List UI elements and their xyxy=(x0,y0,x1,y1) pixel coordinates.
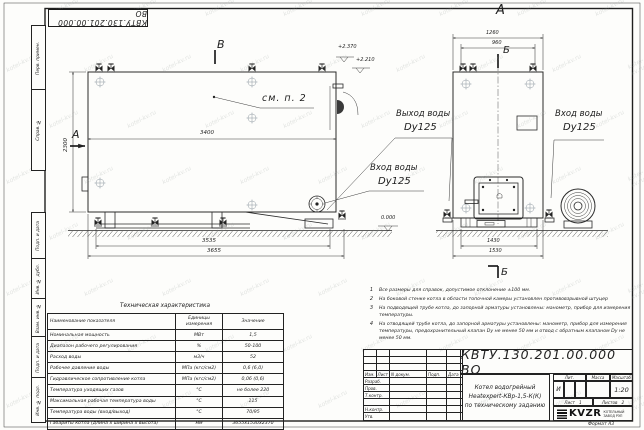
watermark-text: kotel-kv.ru xyxy=(0,0,2,18)
watermark-text: kotel-kv.ru xyxy=(282,333,313,354)
note-item: 3На подводящей трубе котла, до запорной … xyxy=(364,305,635,320)
spec-row: Номинальная мощностьМВт1,5 xyxy=(48,330,284,341)
lit-cell-3 xyxy=(575,381,586,398)
watermark-text: kotel-kv.ru xyxy=(239,53,270,74)
section-mark-b-bottom: Б xyxy=(501,268,508,278)
mass-label: Масса xyxy=(586,374,610,381)
watermark-text: kotel-kv.ru xyxy=(594,0,625,18)
watermark-text: kotel-kv.ru xyxy=(360,221,391,242)
watermark-text: kotel-kv.ru xyxy=(317,53,348,74)
watermark-text: kotel-kv.ru xyxy=(516,0,547,18)
label-water-outlet-dn: Dy125 xyxy=(404,123,437,133)
label-water-outlet: Выход воды xyxy=(396,110,450,119)
top-stamp-box: КВТУ.130.201.00.000 ВО xyxy=(48,9,148,27)
spec-row: Температура воды (вход/выход)°С70/95 xyxy=(48,407,284,418)
spec-row: Диапазон рабочего регулирования%50-100 xyxy=(48,341,284,352)
sig-row: Утв. xyxy=(364,413,463,421)
pipe-label-leaders xyxy=(325,138,604,210)
door-lock xyxy=(497,194,502,198)
watermark-text: kotel-kv.ru xyxy=(126,221,157,242)
kvzr-logo: KVZR КОТЕЛЬНЫЙ ЗАВОД РЭП xyxy=(553,406,633,421)
sheet-cell: Лист 1 xyxy=(553,398,593,406)
note-item: 2На боковой стенке котла в области топоч… xyxy=(364,296,635,303)
dim-3655: 3655 xyxy=(207,249,221,255)
watermark-text: kotel-kv.ru xyxy=(48,109,79,130)
spec-row: Рабочее давление водыМПа (кгс/см2)0,6 (6… xyxy=(48,363,284,374)
spec-table-title: Техническая характеристика xyxy=(47,304,283,310)
watermark-text: kotel-kv.ru xyxy=(48,221,79,242)
section-mark-b: В xyxy=(217,39,225,50)
center-mark-b-top: Б xyxy=(503,46,510,56)
sig-row: Пров. xyxy=(364,385,463,392)
watermark-text: kotel-kv.ru xyxy=(204,109,235,130)
watermark-text: kotel-kv.ru xyxy=(627,57,644,77)
lit-label: Лит. xyxy=(553,374,586,381)
inlet-flange xyxy=(309,196,325,212)
margin-box-perv-primen: Перв. примен. xyxy=(31,25,46,91)
label-water-inlet-side-dn: Dy125 xyxy=(378,177,411,187)
sheets-cell: Листов 2 xyxy=(593,398,633,406)
note-item: 1Все размеры для справок, допустимое отк… xyxy=(364,287,635,294)
watermark-text: kotel-kv.ru xyxy=(360,109,391,130)
watermark-text: kotel-kv.ru xyxy=(395,53,426,74)
watermark-text: kotel-kv.ru xyxy=(438,0,469,18)
elev-2370: +2.370 xyxy=(338,45,357,50)
spec-table: Наименование показателя Единицы измерени… xyxy=(47,313,284,430)
scale-value: 1:20 xyxy=(610,381,633,398)
side-view xyxy=(68,50,398,259)
spec-row: Габариты котла (длина х ширина х высота)… xyxy=(48,418,284,429)
watermark-text: kotel-kv.ru xyxy=(0,221,2,242)
note-item: 4На отводящей трубе котла, до запорной а… xyxy=(364,321,635,343)
watermark-text: kotel-kv.ru xyxy=(83,165,114,186)
side-base xyxy=(96,212,333,228)
dim-3535: 3535 xyxy=(202,239,216,245)
chimney-stub xyxy=(330,84,358,130)
watermark-text: kotel-kv.ru xyxy=(516,221,547,242)
watermark-text: kotel-kv.ru xyxy=(317,389,348,410)
dim-960: 960 xyxy=(492,41,502,46)
sig-row: Т.контр. xyxy=(364,392,463,399)
elev-0000: 0.000 xyxy=(381,216,395,221)
watermark-text: kotel-kv.ru xyxy=(360,0,391,18)
watermark-text: kotel-kv.ru xyxy=(83,277,114,298)
watermark-text: kotel-kv.ru xyxy=(473,53,504,74)
peephole xyxy=(517,116,537,130)
mass-value xyxy=(586,381,610,398)
lit-cell-2 xyxy=(564,381,575,398)
spec-row: Максимальная рабочая температура воды°С1… xyxy=(48,396,284,407)
dim-1530: 1530 xyxy=(489,249,502,254)
label-water-inlet-side: Вход воды xyxy=(370,164,417,173)
top-stamp-text: КВТУ.130.201.00.000 ВО xyxy=(49,9,147,27)
watermark-text: kotel-kv.ru xyxy=(473,165,504,186)
watermark-text: kotel-kv.ru xyxy=(239,165,270,186)
scale-label: Масштаб xyxy=(610,374,633,381)
watermark-text: kotel-kv.ru xyxy=(204,0,235,18)
watermark-text: kotel-kv.ru xyxy=(317,165,348,186)
spec-row: Гидравлическое сопротивление котлаМПа (к… xyxy=(48,374,284,385)
spec-row: Температура уходящих газов°Сне более 220 xyxy=(48,385,284,396)
dim-2300: 2300 xyxy=(64,138,70,152)
sig-row: Разраб. xyxy=(364,378,463,385)
title-block: Изм. Лист N докум. Подп. Дата Разраб. Пр… xyxy=(363,349,633,421)
front-view xyxy=(436,34,608,278)
watermark-text: kotel-kv.ru xyxy=(551,165,582,186)
label-water-inlet-front: Вход воды xyxy=(555,110,602,119)
dim-1430: 1430 xyxy=(487,239,500,244)
view-title-a: А xyxy=(496,4,505,17)
furnace-door xyxy=(465,177,523,219)
watermark-text: kotel-kv.ru xyxy=(126,109,157,130)
elev-2210: +2.210 xyxy=(356,58,375,63)
lit-value: И xyxy=(553,381,564,398)
watermark-text: kotel-kv.ru xyxy=(161,165,192,186)
kvzr-logo-subtitle: КОТЕЛЬНЫЙ ЗАВОД РЭП xyxy=(603,410,624,418)
margin-box-inv-dubl: Инв. № дубл. xyxy=(31,258,46,300)
watermark-text: kotel-kv.ru xyxy=(516,109,547,130)
callout-see-p2: см. п. 2 xyxy=(262,94,307,104)
watermark-text: kotel-kv.ru xyxy=(438,221,469,242)
front-base xyxy=(461,218,537,227)
spec-header-row: Наименование показателя Единицы измерени… xyxy=(48,314,284,330)
margin-box-podp-data-1: Подп. и дата xyxy=(31,212,46,260)
margin-box-vzam-inv: Взам. инв. № xyxy=(31,298,46,338)
watermark-text: kotel-kv.ru xyxy=(551,53,582,74)
product-name: Котел водогрейный Heatexpert-КВр-1,5-К(К… xyxy=(460,374,550,421)
sig-row: Н.контр. xyxy=(364,406,463,413)
watermark-text: kotel-kv.ru xyxy=(282,109,313,130)
kvzr-logo-mark xyxy=(557,409,567,419)
spec-row: Расход водым3/ч52 xyxy=(48,352,284,363)
watermark-text: kotel-kv.ru xyxy=(0,333,2,354)
watermark-text: kotel-kv.ru xyxy=(317,277,348,298)
watermark-text: kotel-kv.ru xyxy=(161,53,192,74)
change-table: Изм. Лист N докум. Подп. Дата Разраб. Пр… xyxy=(363,349,463,421)
watermark-text: kotel-kv.ru xyxy=(161,277,192,298)
watermark-text: kotel-kv.ru xyxy=(282,0,313,18)
drawing-sheet: kotel-kv.rukotel-kv.rukotel-kv.rukotel-k… xyxy=(0,0,644,430)
watermark-text: kotel-kv.ru xyxy=(594,221,625,242)
watermark-text: kotel-kv.ru xyxy=(239,277,270,298)
dim-3400: 3400 xyxy=(200,131,214,137)
margin-box-sprav-no: Справ. № xyxy=(31,89,46,171)
sig-row xyxy=(364,399,463,406)
doc-number: КВТУ.130.201.00.000 ВО xyxy=(460,349,633,374)
blower-fan xyxy=(561,189,595,228)
change-header-row: Изм. Лист N докум. Подп. Дата xyxy=(364,371,463,378)
dim-1260: 1260 xyxy=(486,31,499,36)
format-label: Формат А3 xyxy=(588,422,614,427)
watermark-text: kotel-kv.ru xyxy=(627,169,644,189)
watermark-text: kotel-kv.ru xyxy=(83,53,114,74)
watermark-text: kotel-kv.ru xyxy=(0,109,2,130)
margin-box-inv-podl: Инв. № подл. xyxy=(31,377,46,423)
kvzr-logo-text: KVZR xyxy=(569,408,601,419)
notes-list: 1Все размеры для справок, допустимое отк… xyxy=(364,287,635,344)
label-water-inlet-front-dn: Dy125 xyxy=(563,123,596,133)
watermark-text: kotel-kv.ru xyxy=(282,221,313,242)
section-mark-a: А xyxy=(72,129,80,140)
margin-box-podp-data-2: Подп. и дата xyxy=(31,336,46,379)
